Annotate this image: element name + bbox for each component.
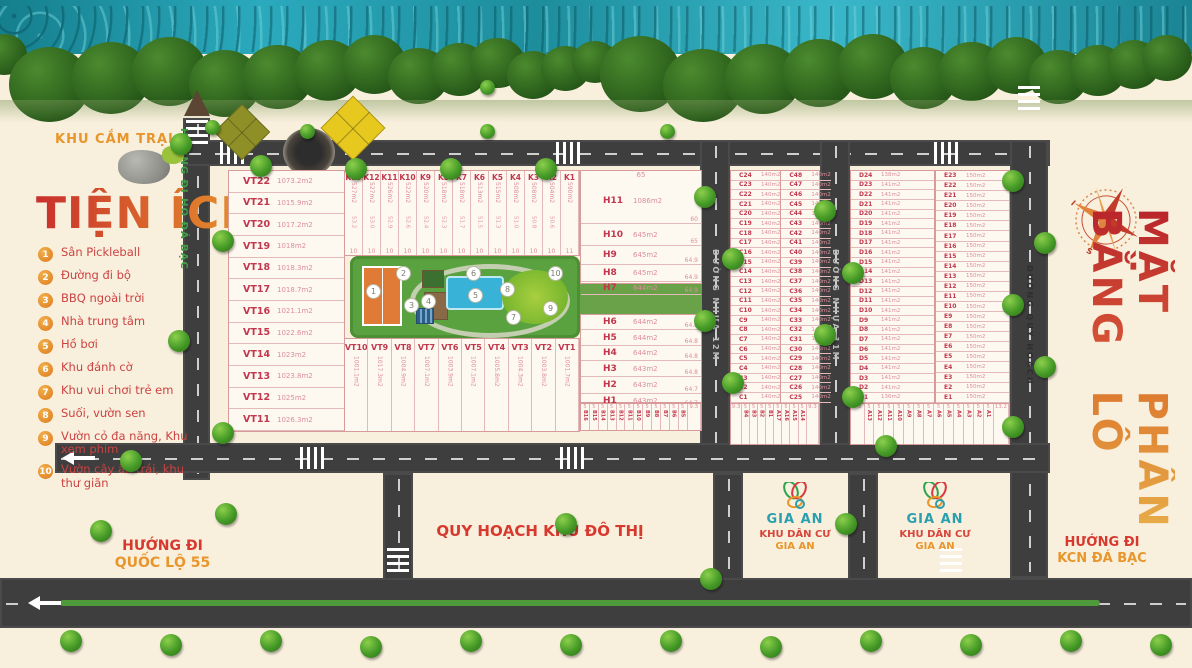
legend-item-label: Sân Pickleball (61, 246, 140, 259)
lot-c: C13140m2 (731, 277, 780, 287)
quy-hoach-khu-do-thi-label: QUY HOẠCH KHU ĐÔ THỊ (395, 522, 685, 540)
small-lot: 5A9 (904, 404, 914, 444)
lot-c: C38140m2 (781, 268, 830, 278)
tree-icon (842, 262, 864, 284)
tree-icon (814, 324, 836, 346)
lot-d: D13141m2 (851, 277, 934, 287)
legend-item-number: 7 (38, 385, 53, 400)
lot-e: E12150m2 (936, 282, 1009, 292)
lot-d: D21141m2 (851, 200, 934, 210)
road-mid-horizontal (55, 443, 1050, 473)
lot-e: E11150m2 (936, 292, 1009, 302)
legend-item: 7Khu vui chơi trẻ em (38, 384, 188, 400)
lot-c: C40140m2 (781, 248, 830, 258)
small-lot: 5B3 (750, 404, 758, 444)
lot-c: C1140m2 (731, 393, 780, 403)
legend-item-number: 9 (38, 431, 53, 446)
lot-e: E10150m2 (936, 302, 1009, 312)
amenity-marker: 9 (543, 301, 558, 316)
lot-c: C34140m2 (781, 306, 830, 316)
lot-e: E15150m2 (936, 252, 1009, 262)
road-median-green (60, 600, 1100, 606)
gia-an-flower-icon (918, 482, 952, 512)
lot-c: C35140m2 (781, 297, 830, 307)
lot-vt: VT41005.8m2 (485, 339, 508, 431)
lot-e: E16150m2 (936, 242, 1009, 252)
road-connector-2 (713, 473, 743, 581)
amenity-park (350, 256, 580, 338)
lot-e: E2150m2 (936, 383, 1009, 393)
tree-icon (60, 630, 82, 652)
small-lot-row-h: 5B165B155B145B135B125B115B105B95B85B75B6… (580, 403, 702, 431)
small-lot: 5B16 (581, 404, 590, 430)
lot-e: E4150m2 (936, 362, 1009, 372)
tree-icon (660, 630, 682, 652)
lot-vt: VT141023m2 (229, 344, 344, 366)
lot-c: C4140m2 (731, 364, 780, 374)
camp-zone-label-red: KHU CẮM (55, 132, 131, 147)
road-label-nhua-11m: ĐƯỜNG NHỰA 11M (831, 230, 840, 380)
lot-c: C21140m2 (731, 200, 780, 210)
lot-d: D24138m2 (851, 171, 934, 181)
small-lot: 5B15 (590, 404, 599, 430)
lot-d: D23141m2 (851, 181, 934, 191)
lot-k: K11526m252.910 (381, 171, 399, 255)
lot-d: D15141m2 (851, 258, 934, 268)
gia-an-card: GIA AN KHU DÂN CƯ GIA AN (885, 482, 985, 552)
quoc-lo-55-text: QUỐC LỘ 55 (95, 555, 230, 572)
bbq-area (422, 270, 444, 288)
legend-item-number: 4 (38, 316, 53, 331)
lot-c: C20140m2 (731, 210, 780, 220)
small-lot: 5B12 (617, 404, 626, 430)
lot-d: D12141m2 (851, 287, 934, 297)
small-lot: 5B8 (652, 404, 661, 430)
lot-vt: VT11001.7m2 (556, 339, 579, 431)
tree-icon (260, 630, 282, 652)
lot-c: C10140m2 (731, 306, 780, 316)
tree-icon (1002, 294, 1024, 316)
lot-vt: VT151022.6m2 (229, 323, 344, 345)
lot-c: C28140m2 (781, 364, 830, 374)
small-lot: 5A7 (924, 404, 934, 444)
legend-item-label: Suối, vườn sen (61, 407, 146, 420)
lot-k: K1590m211 (561, 171, 579, 255)
legend-item-label: Nhà trung tâm (61, 315, 145, 328)
gia-an-flower-icon (778, 482, 812, 512)
lot-e: E5150m2 (936, 352, 1009, 362)
lot-d: D22141m2 (851, 190, 934, 200)
tree-icon (215, 503, 237, 525)
lot-e: E6150m2 (936, 342, 1009, 352)
tree-icon (835, 513, 857, 535)
legend-item-number: 6 (38, 362, 53, 377)
lot-c: C5140m2 (731, 354, 780, 364)
lot-c: C27140m2 (781, 374, 830, 384)
tree-icon (205, 120, 220, 135)
small-lot: 5A16 (782, 404, 790, 444)
small-lot: 5B9 (643, 404, 652, 430)
lot-c: C9140m2 (731, 316, 780, 326)
lot-vt: VT171018.7m2 (229, 279, 344, 301)
small-lot: 5A1 (984, 404, 994, 444)
lot-c: C30140m2 (781, 345, 830, 355)
legend-list: 1Sân Pickleball2Đường đi bộ3BBQ ngoài tr… (38, 246, 188, 497)
lot-h: H3643m264.8 (581, 361, 701, 377)
lot-k: K10522m252.610 (399, 171, 417, 255)
tree-icon (1060, 630, 1082, 652)
tree-icon (360, 636, 382, 658)
legend-item-number: 10 (38, 464, 53, 479)
small-lot: 5B2 (758, 404, 766, 444)
lot-c: C17140m2 (731, 239, 780, 249)
lot-d: D3141m2 (851, 374, 934, 384)
tree-icon (722, 248, 744, 270)
lot-e: E20150m2 (936, 201, 1009, 211)
plan-title-line1: MẶT BẰNG (1065, 208, 1175, 385)
lot-c: C14140m2 (731, 268, 780, 278)
legend-item-number: 3 (38, 293, 53, 308)
amenity-marker: 8 (500, 282, 515, 297)
lot-c: C6140m2 (731, 345, 780, 355)
legend-item-label: BBQ ngoài trời (61, 292, 144, 305)
tree-icon (760, 636, 782, 658)
small-lot: 5B14 (599, 404, 608, 430)
lot-c: C36140m2 (781, 287, 830, 297)
crosswalk (300, 447, 326, 469)
treeline-blob (1142, 35, 1192, 81)
lot-e: E23150m2 (936, 171, 1009, 181)
lot-d: D10141m2 (851, 306, 934, 316)
gia-an-logo-text: GIA AN (906, 512, 963, 527)
small-lot: 5A17 (774, 404, 782, 444)
amenity-marker: 5 (468, 288, 483, 303)
compass-w: W (1065, 196, 1077, 208)
tree-icon (1002, 170, 1024, 192)
tree-icon (694, 310, 716, 332)
khu-dan-cu-text: KHU DÂN CƯ (759, 529, 830, 540)
tree-icon (300, 124, 315, 139)
huong-di-quoc-lo-55-label: HƯỚNG ĐI QUỐC LỘ 55 (95, 538, 230, 572)
tree-icon (212, 422, 234, 444)
small-lot: 5B7 (661, 404, 670, 430)
legend-item-label: Khu đánh cờ (61, 361, 133, 374)
lot-d: D20141m2 (851, 210, 934, 220)
tree-icon (875, 435, 897, 457)
small-lot: 5B4 (742, 404, 750, 444)
small-lot: 5A8 (914, 404, 924, 444)
lot-d: D16141m2 (851, 248, 934, 258)
quy-hoach-text: QUY HOẠCH KHU ĐÔ THỊ (436, 522, 643, 540)
lot-e: E18150m2 (936, 221, 1009, 231)
legend-item-number: 5 (38, 339, 53, 354)
tree-icon (555, 513, 577, 535)
lot-c: C24140m2 (731, 171, 780, 181)
c-left-column: C24140m2C23140m2C22140m2C21140m2C20140m2… (731, 171, 780, 402)
tree-icon (1034, 232, 1056, 254)
lot-vt: VT61003.9m2 (439, 339, 462, 431)
lot-vt: VT71007.1m2 (415, 339, 438, 431)
amenity-marker: 1 (366, 284, 381, 299)
lot-d: D18141m2 (851, 229, 934, 239)
legend-item: 3BBQ ngoài trời (38, 292, 188, 308)
lot-c: C22140m2 (731, 190, 780, 200)
lot-vt: VT121025m2 (229, 388, 344, 410)
plan-title: MẶT BẰNG PHÂN LÔ (1065, 208, 1175, 538)
camp-zone-label-orange: TRẠI (136, 132, 174, 147)
lot-d: D2141m2 (851, 383, 934, 393)
small-lot: 5A5 (944, 404, 954, 444)
legend-item: 10Vườn cây ăn trái, khu thư giãn (38, 463, 188, 489)
d-block: D24138m2D23141m2D22141m2D21141m2D20141m2… (850, 170, 935, 403)
lot-c: C42140m2 (781, 229, 830, 239)
plan-title-line2: PHÂN LÔ (1065, 391, 1175, 538)
legend-item-number: 8 (38, 408, 53, 423)
tree-icon (842, 386, 864, 408)
lot-h: H4644m264.8 (581, 346, 701, 361)
crosswalk (1018, 86, 1040, 112)
tree-icon (700, 568, 722, 590)
solar-panel (416, 308, 434, 324)
lot-k: K3508m250.810 (525, 171, 543, 255)
lot-e: E17150m2 (936, 231, 1009, 241)
huong-di-text: HƯỚNG ĐI (95, 538, 230, 555)
small-lot: 5A6 (934, 404, 944, 444)
lot-vt: VT191018m2 (229, 236, 344, 258)
lot-vt: VT131023.8m2 (229, 366, 344, 388)
small-lot: 5B11 (625, 404, 634, 430)
lot-h: H8645m264.9 (581, 265, 701, 282)
lot-c: C46140m2 (781, 190, 830, 200)
lot-d: D9141m2 (851, 316, 934, 326)
lot-vt: VT81004.9m2 (392, 339, 415, 431)
tree-icon (345, 158, 367, 180)
tree-icon (170, 133, 192, 155)
crosswalk (560, 447, 586, 469)
gia-an-card: GIA AN KHU DÂN CƯ GIA AN (745, 482, 845, 552)
legend-item: 5Hồ bơi (38, 338, 188, 354)
small-lot: 5B13 (608, 404, 617, 430)
tree-icon (1150, 634, 1172, 656)
lot-d: D7141m2 (851, 335, 934, 345)
amenity-marker: 3 (404, 298, 419, 313)
small-lot: 5A15 (790, 404, 798, 444)
lot-vt: VT201017.2m2 (229, 214, 344, 236)
small-lot: 5A2 (974, 404, 984, 444)
lot-c: C48140m2 (781, 171, 830, 181)
small-lot-dim: 9.3 (807, 404, 819, 444)
lot-e: E13150m2 (936, 272, 1009, 282)
small-lot: 5A10 (894, 404, 904, 444)
lot-vt: VT161021.1m2 (229, 301, 344, 323)
lot-h: H9645m264.9 (581, 246, 701, 265)
lot-h: H6644m264.8 (581, 315, 701, 330)
legend-item-label: Khu vui chơi trẻ em (61, 384, 173, 397)
lot-e: E7150m2 (936, 332, 1009, 342)
legend-item: 6Khu đánh cờ (38, 361, 188, 377)
tree-icon (212, 230, 234, 252)
small-lot: 5A4 (954, 404, 964, 444)
e-block: E23150m2E22150m2E21150m2E20150m2E19150m2… (935, 170, 1010, 403)
khu-dan-cu-text: KHU DÂN CƯ (899, 529, 970, 540)
lot-d: D8141m2 (851, 326, 934, 336)
legend-item: 4Nhà trung tâm (38, 315, 188, 331)
amenity-marker: 4 (421, 294, 436, 309)
small-lot-dim: 9.3 (731, 404, 742, 444)
lot-e: E8150m2 (936, 322, 1009, 332)
small-lot-row-de: 8.25A135A125A115A105A95A85A75A65A55A45A3… (850, 403, 1010, 445)
gia-an-text: GIA AN (775, 541, 814, 552)
vt-bottom-block: VT101001.1m2VT91017.3m2VT81004.9m2VT7100… (345, 338, 580, 432)
lot-k: K4508m251.010 (507, 171, 525, 255)
lot-d: D6141m2 (851, 345, 934, 355)
tree-icon (722, 372, 744, 394)
small-lot: 5B6 (670, 404, 679, 430)
camp-zone-label: KHU CẮM TRẠI (55, 132, 174, 147)
h-upper-block: 65H111086m260H10645m265H9645m264.9H8645m… (580, 170, 702, 284)
tree-icon (535, 158, 557, 180)
small-lot: 5A3 (964, 404, 974, 444)
small-lot-row-c: 9.35B45B35B25B15A175A165A155A149.3 (730, 403, 820, 445)
amenity-marker: 10 (548, 266, 563, 281)
lot-d: D19141m2 (851, 219, 934, 229)
k-row-block: K13527m253.210K12527m253.010K11526m252.9… (345, 170, 580, 256)
lot-c: C25140m2 (781, 393, 830, 403)
lot-c: C23140m2 (731, 181, 780, 191)
lot-h: H2643m264.7 (581, 377, 701, 394)
h-lower-block: H6644m264.8H5644m264.8H4644m264.8H3643m2… (580, 314, 702, 403)
crosswalk (556, 142, 582, 164)
lot-h: H7644m264.9 (581, 282, 701, 295)
amenity-marker: 2 (396, 266, 411, 281)
legend-item: 9Vườn cỏ đa năng, Khu xem phim (38, 430, 188, 456)
tree-icon (660, 124, 675, 139)
tree-icon (460, 630, 482, 652)
lot-d: D5141m2 (851, 354, 934, 364)
lot-c: C47140m2 (781, 181, 830, 191)
h-top-dim: 65 (581, 171, 701, 179)
lot-h: H10645m265 (581, 224, 701, 246)
amenity-marker: 6 (466, 266, 481, 281)
road-label-nhua-12m: ĐƯỜNG NHỰA 12M (711, 230, 720, 380)
tree-icon (250, 155, 272, 177)
vt-left-block: VT221073.2m2VT211015.9m2VT201017.2m2VT19… (228, 170, 345, 432)
small-lot: 5B10 (634, 404, 643, 430)
lot-d: D4141m2 (851, 364, 934, 374)
tree-icon (440, 158, 462, 180)
tree-icon (90, 520, 112, 542)
lot-c: C19140m2 (731, 219, 780, 229)
c-block: C24140m2C23140m2C22140m2C21140m2C20140m2… (730, 170, 820, 403)
crosswalk (934, 142, 960, 164)
lot-d: D11141m2 (851, 297, 934, 307)
tree-icon (694, 186, 716, 208)
lot-c: C26140m2 (781, 383, 830, 393)
lot-c: C12140m2 (731, 287, 780, 297)
lot-e: E3150m2 (936, 373, 1009, 383)
legend-item-number: 1 (38, 247, 53, 262)
lot-e: E21150m2 (936, 191, 1009, 201)
lot-e: E22150m2 (936, 181, 1009, 191)
lot-vt: VT21003.8m2 (532, 339, 555, 431)
lot-c: C29140m2 (781, 354, 830, 364)
lot-e: E1150m2 (936, 393, 1009, 403)
lot-k: K2504m250.610 (543, 171, 561, 255)
tree-icon (860, 630, 882, 652)
lot-c: C41140m2 (781, 239, 830, 249)
lot-c: C39140m2 (781, 258, 830, 268)
huong-di-kcn-da-bac-label: HƯỚNG ĐI KCN ĐÁ BẠC (1042, 535, 1162, 566)
watchtower-icon (184, 90, 210, 116)
tree-icon (160, 634, 182, 656)
tree-icon (814, 200, 836, 222)
gia-an-logo-text: GIA AN (766, 512, 823, 527)
lot-h: H111086m260 (581, 179, 701, 224)
legend-item-label: Đường đi bộ (61, 269, 131, 282)
small-lot-dim: 9.3 (688, 404, 702, 430)
lot-vt: VT211015.9m2 (229, 193, 344, 215)
lot-h: H5644m264.8 (581, 330, 701, 346)
lot-e: E9150m2 (936, 312, 1009, 322)
lot-k: K6513m251.510 (471, 171, 489, 255)
tree-icon (168, 330, 190, 352)
lot-vt: VT111026.3m2 (229, 409, 344, 431)
lot-e: E14150m2 (936, 262, 1009, 272)
tree-icon (480, 124, 495, 139)
small-lot: 5B1 (766, 404, 774, 444)
tree-icon (120, 450, 142, 472)
compass-n: N (1119, 178, 1130, 190)
lot-k: K12527m253.010 (363, 171, 381, 255)
legend-item: 1Sân Pickleball (38, 246, 188, 262)
lot-k: K8518m252.310 (435, 171, 453, 255)
lot-k: K13527m253.210 (345, 171, 363, 255)
small-lot-dim: 8.2 (851, 404, 865, 444)
tree-icon (480, 80, 495, 95)
legend-item-label: Hồ bơi (61, 338, 98, 351)
beach-sand-edge (0, 100, 1192, 122)
lot-c: C18140m2 (731, 229, 780, 239)
legend-item-number: 2 (38, 270, 53, 285)
tree-icon (1034, 356, 1056, 378)
lot-vt: VT31004.3m2 (509, 339, 532, 431)
lot-vt: VT181018.3m2 (229, 258, 344, 280)
lot-k: K5515m251.310 (489, 171, 507, 255)
road-label-quy-hoach: ĐƯỜNG QUY HOẠCH (1025, 250, 1034, 400)
lot-vt: VT51007.1m2 (462, 339, 485, 431)
tree-icon (1002, 416, 1024, 438)
gia-an-text: GIA AN (915, 541, 954, 552)
lot-c: C11140m2 (731, 297, 780, 307)
lot-vt: VT91017.3m2 (368, 339, 391, 431)
crosswalk (387, 548, 409, 574)
amenity-marker: 7 (506, 310, 521, 325)
small-lot: 5A13 (865, 404, 875, 444)
lot-vt: VT101001.1m2 (345, 339, 368, 431)
legend-item: 8Suối, vườn sen (38, 407, 188, 423)
tree-icon (560, 634, 582, 656)
small-lot: 5A14 (799, 404, 807, 444)
road-arrow (28, 596, 40, 610)
small-lot: 5B5 (679, 404, 688, 430)
lot-c: C7140m2 (731, 335, 780, 345)
lot-d: D17141m2 (851, 239, 934, 249)
lot-vt: VT221073.2m2 (229, 171, 344, 193)
lot-e: E19150m2 (936, 211, 1009, 221)
lot-k: K9520m252.410 (417, 171, 435, 255)
lot-c: C37140m2 (781, 277, 830, 287)
lot-c: C8140m2 (731, 326, 780, 336)
